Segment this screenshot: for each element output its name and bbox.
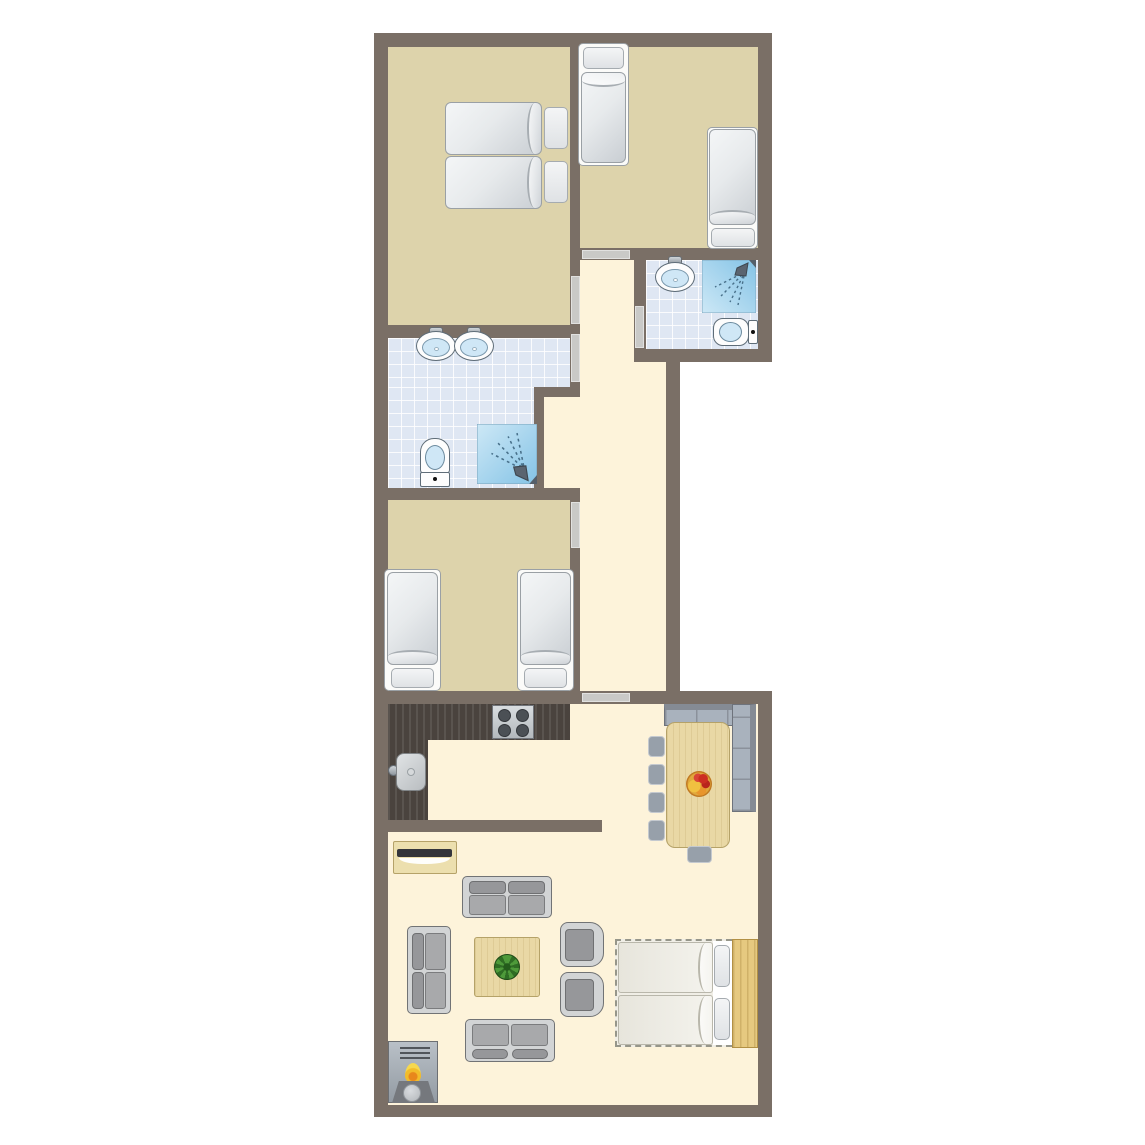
dining-chair	[648, 792, 665, 813]
sofa-top	[462, 876, 552, 918]
shower-icon	[702, 260, 756, 313]
pillow	[711, 228, 755, 247]
headboard	[732, 939, 758, 1048]
door-living-room	[582, 693, 630, 702]
kitchen-sink-drain	[407, 768, 415, 776]
dining-chair	[687, 846, 712, 863]
mattress	[445, 102, 542, 155]
pillow	[544, 161, 568, 203]
door-bathroom-main	[571, 334, 580, 382]
pillow	[583, 47, 624, 69]
hallway-floor-top	[580, 260, 634, 362]
plant-icon	[494, 954, 520, 980]
floor-plan	[0, 0, 1145, 1145]
kitchen-counter-top	[388, 704, 570, 740]
fireplace	[388, 1041, 438, 1103]
mattress	[581, 72, 626, 163]
sink-icon	[454, 331, 494, 361]
door-bedroom-2	[582, 250, 630, 259]
dining-chair	[648, 820, 665, 841]
pillow	[714, 998, 730, 1040]
door-bedroom-3	[571, 502, 580, 548]
pillow	[544, 107, 568, 149]
dining-bench-right	[732, 704, 756, 812]
stove-icon	[492, 705, 534, 739]
tv-icon	[397, 849, 452, 857]
pillow	[391, 668, 434, 688]
sofa-left	[407, 926, 451, 1014]
mattress	[387, 572, 438, 665]
sofa-bed-mattress	[618, 995, 713, 1045]
mattress	[520, 572, 571, 665]
shower-icon	[477, 424, 537, 484]
sink-icon	[416, 331, 456, 361]
hallway-floor-nook	[544, 397, 580, 488]
door-bathroom-ensuite	[635, 306, 644, 348]
sink-icon	[655, 262, 695, 292]
mattress	[709, 129, 756, 225]
hallway-floor-main	[580, 362, 666, 691]
sofa-bed-mattress	[618, 942, 713, 993]
dining-chair	[648, 764, 665, 785]
dining-chair	[648, 736, 665, 757]
kitchen-half-wall	[374, 820, 602, 832]
fruit-bowl	[686, 771, 712, 797]
mattress	[445, 156, 542, 209]
sofa-bottom	[465, 1019, 555, 1062]
pillow	[714, 945, 730, 987]
door-bedroom-1	[571, 276, 580, 324]
armchair	[560, 972, 604, 1017]
pillow	[524, 668, 567, 688]
flame-icon	[405, 1063, 421, 1083]
armchair	[560, 922, 604, 967]
